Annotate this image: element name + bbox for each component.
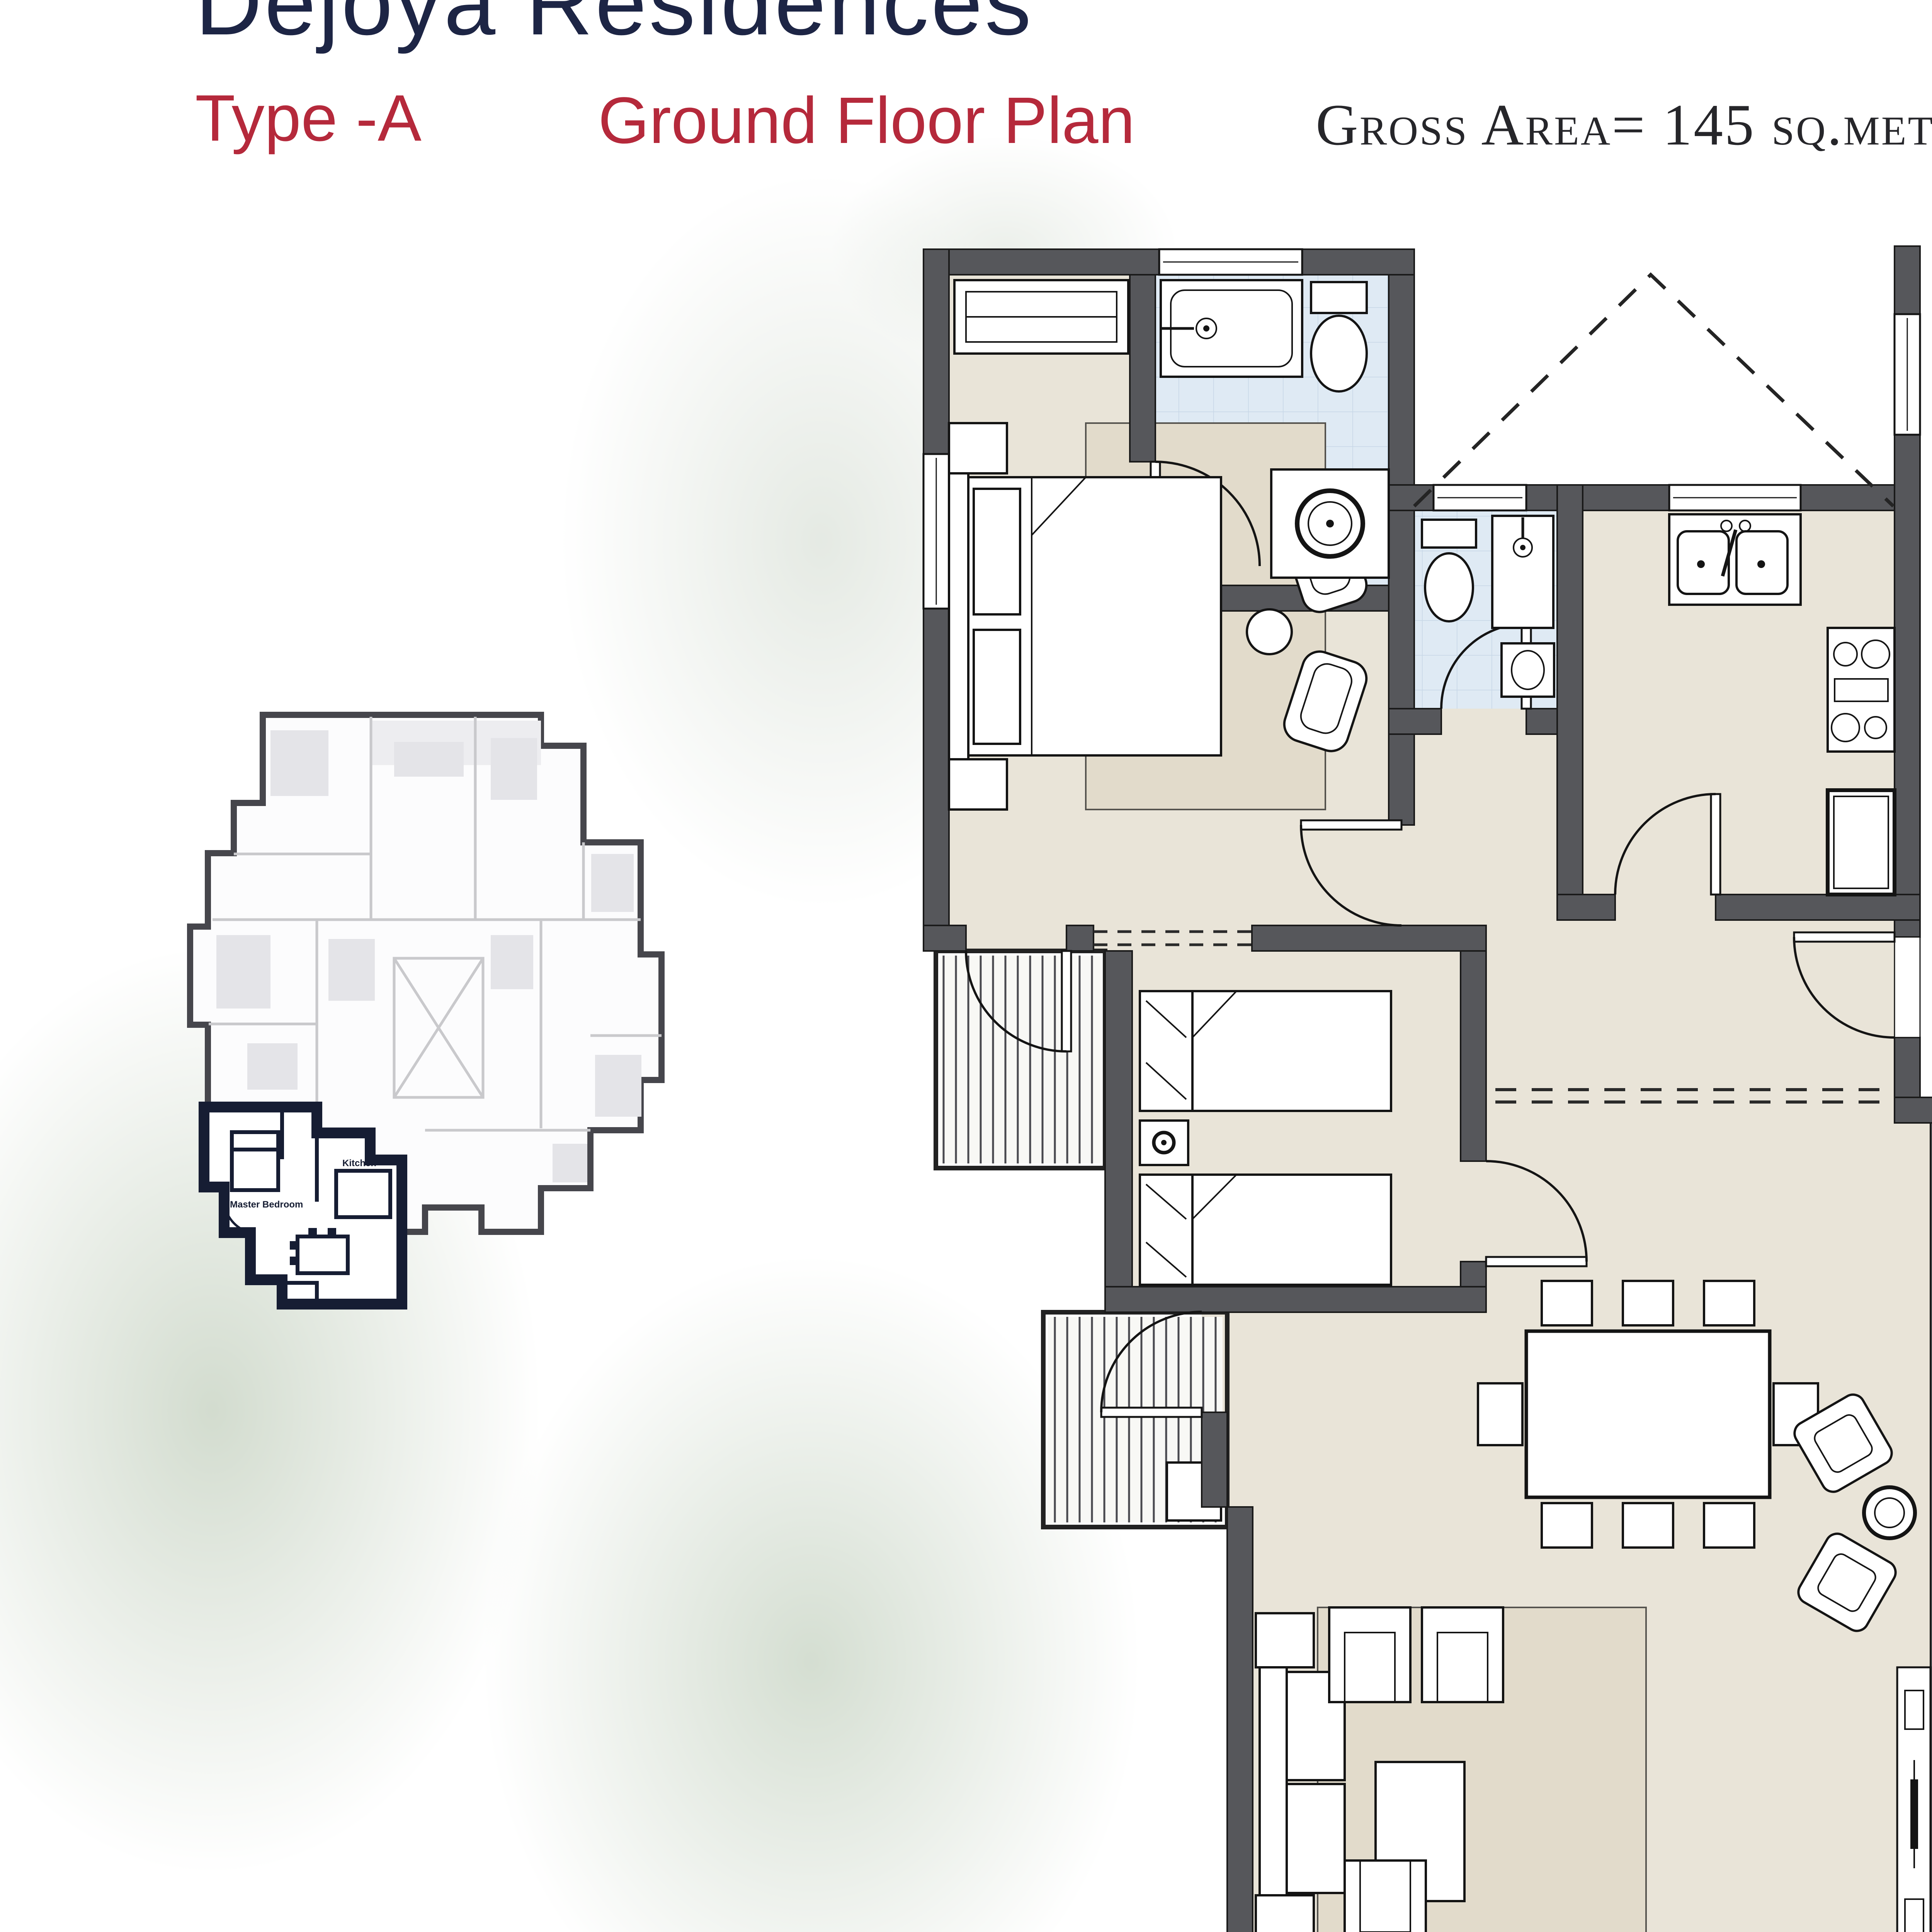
- key-plan-figure: Master Bedroom Kitchen: [155, 688, 699, 1395]
- stove: [1828, 628, 1895, 752]
- window: [1669, 485, 1801, 510]
- entrance-canopy: [1414, 275, 1893, 506]
- page-title: Dejoya Residences: [195, 0, 1034, 56]
- bathtub: [1161, 280, 1302, 377]
- dining-table: [1526, 1331, 1770, 1497]
- single-bed: [1140, 1175, 1391, 1285]
- window: [923, 454, 949, 609]
- entrance-threshold: [1895, 937, 1920, 1037]
- main-floor-plan-figure: [900, 238, 1932, 1932]
- key-plan-label-master-bedroom: Master Bedroom: [230, 1199, 303, 1210]
- page: { "header": { "title": "Dejoya Residence…: [0, 0, 1932, 1932]
- double-sink: [1669, 514, 1801, 605]
- toilet: [1311, 282, 1367, 391]
- window: [1159, 249, 1302, 275]
- wardrobe: [954, 280, 1128, 354]
- gross-area-label: Gross Area= 145 sq.meter: [1316, 91, 1932, 158]
- refrigerator: [1828, 790, 1895, 895]
- round-table: [1864, 1487, 1915, 1538]
- unit-type-label: Type -A: [195, 80, 422, 156]
- window: [1895, 314, 1920, 435]
- tv-console: [1897, 1667, 1930, 1932]
- double-bed: [949, 473, 1221, 759]
- armchair: [1329, 1607, 1410, 1702]
- armchair: [1422, 1607, 1503, 1702]
- nightstand: [949, 423, 1007, 473]
- armchair: [1345, 1861, 1426, 1932]
- hall-floor: [1583, 920, 1895, 1123]
- side-table: [1247, 609, 1292, 654]
- nightstand: [949, 759, 1007, 810]
- nightstand: [1140, 1121, 1188, 1165]
- vanity-sink: [1271, 469, 1389, 578]
- balcony-1: [936, 951, 1105, 1168]
- window: [1434, 485, 1526, 510]
- single-bed: [1140, 991, 1391, 1111]
- key-plan-highlighted-unit: Master Bedroom Kitchen: [204, 1107, 402, 1304]
- balcony-2: [1043, 1312, 1227, 1527]
- shower: [1492, 516, 1553, 628]
- floor-plan-label: Ground Floor Plan: [598, 83, 1135, 158]
- key-plan-label-kitchen: Kitchen: [342, 1158, 376, 1168]
- toilet: [1422, 520, 1476, 621]
- washbasin: [1502, 643, 1554, 697]
